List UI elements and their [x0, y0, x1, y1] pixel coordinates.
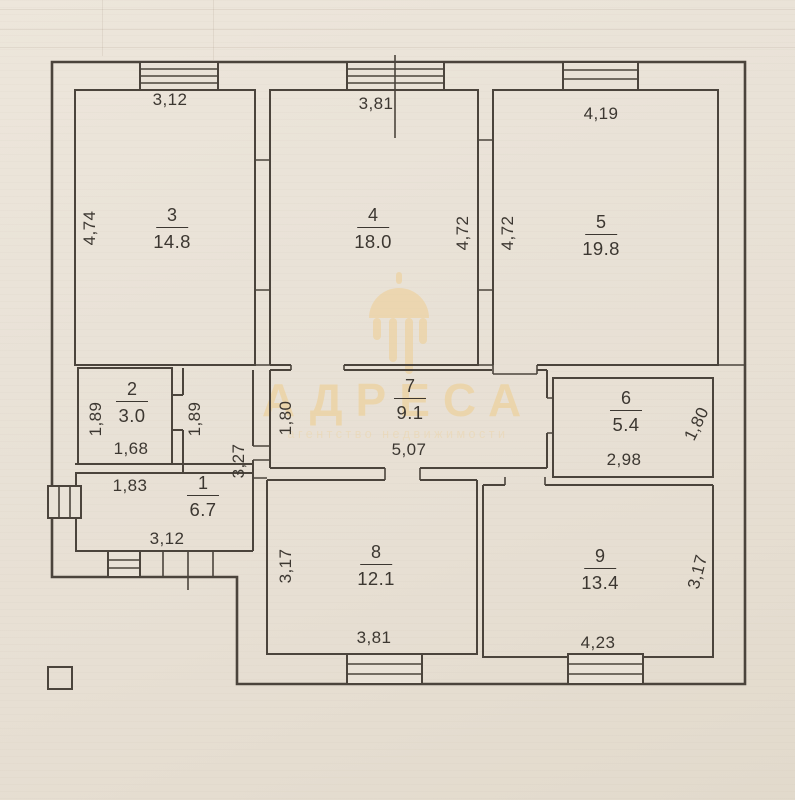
window-symbol: [48, 486, 81, 518]
room-8-label: 8 12.1: [357, 542, 395, 590]
room-number: 6: [610, 388, 642, 411]
dim-room7-bottom: 5,07: [392, 440, 427, 460]
dim-room1-bottom: 3,12: [150, 529, 185, 549]
room-number: 1: [187, 473, 219, 496]
dim-room8-left: 3,17: [276, 549, 296, 584]
dim-room5-left: 4,72: [498, 216, 518, 251]
scanned-floor-plan: АДРЕСА агентство недвижимости: [0, 0, 795, 800]
window-symbol: [347, 654, 422, 684]
window-symbol: [563, 62, 638, 90]
room-2-label: 2 3.0: [116, 379, 148, 427]
room-area: 5.4: [610, 411, 642, 436]
room-area: 12.1: [357, 565, 395, 590]
dim-room2-left: 1,89: [86, 402, 106, 437]
room-number: 2: [116, 379, 148, 402]
room-6-label: 6 5.4: [610, 388, 642, 436]
dim-room1-right: 3,27: [229, 444, 249, 479]
room-number: 3: [156, 205, 188, 228]
window-symbol: [140, 62, 218, 90]
dim-room5-top: 4,19: [584, 104, 619, 124]
window-symbol: [108, 551, 140, 577]
room-2-door-wall: [172, 368, 183, 473]
room-7-label: 7 9.1: [394, 376, 426, 424]
room-1-label: 1 6.7: [187, 473, 219, 521]
room-area: 19.8: [582, 235, 620, 260]
room-5-label: 5 19.8: [582, 212, 620, 260]
room-number: 9: [584, 546, 616, 569]
dim-room6-bottom: 2,98: [607, 450, 642, 470]
dim-room2-right: 1,89: [185, 402, 205, 437]
dim-room3-left: 4,74: [80, 211, 100, 246]
room-area: 3.0: [116, 402, 148, 427]
room-number: 8: [360, 542, 392, 565]
entry-door-ticks: [163, 551, 213, 590]
hall-left-walls: [75, 370, 253, 551]
dim-room4-right: 4,72: [453, 216, 473, 251]
window-symbol: [568, 654, 643, 684]
dim-room3-top: 3,12: [153, 90, 188, 110]
room-area: 13.4: [581, 569, 619, 594]
room-number: 5: [585, 212, 617, 235]
dim-room1-top: 1,83: [113, 476, 148, 496]
dim-room7-left: 1,80: [276, 401, 296, 436]
room-3-label: 3 14.8: [153, 205, 191, 253]
room-number: 4: [357, 205, 389, 228]
room-area: 6.7: [187, 496, 219, 521]
dim-room8-bottom: 3,81: [357, 628, 392, 648]
room-9-label: 9 13.4: [581, 546, 619, 594]
room-number: 7: [394, 376, 426, 399]
outer-wall: [52, 62, 745, 684]
detached-block: [48, 667, 72, 689]
room-area: 14.8: [153, 228, 191, 253]
room-4-label: 4 18.0: [354, 205, 392, 253]
room-area: 18.0: [354, 228, 392, 253]
dim-room4-top: 3,81: [359, 94, 394, 114]
room-area: 9.1: [394, 399, 426, 424]
dim-room9-bottom: 4,23: [581, 633, 616, 653]
dim-room2-bottom: 1,68: [114, 439, 149, 459]
